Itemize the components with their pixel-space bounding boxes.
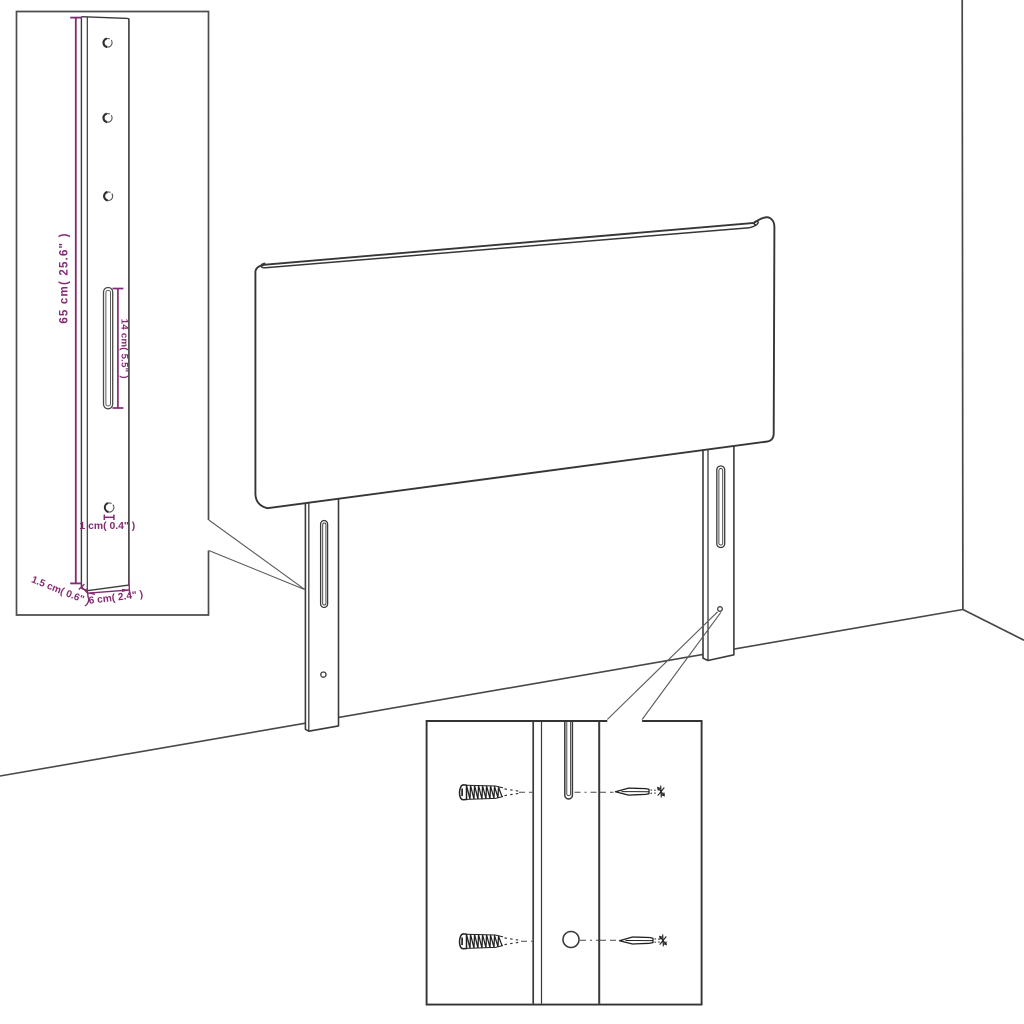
svg-text:14 cm( 5.5" ): 14 cm( 5.5" ) — [118, 319, 129, 379]
svg-text:1 cm( 0.4" ): 1 cm( 0.4" ) — [79, 521, 135, 532]
svg-text:65 cm( 25.6" ): 65 cm( 25.6" ) — [59, 232, 71, 323]
